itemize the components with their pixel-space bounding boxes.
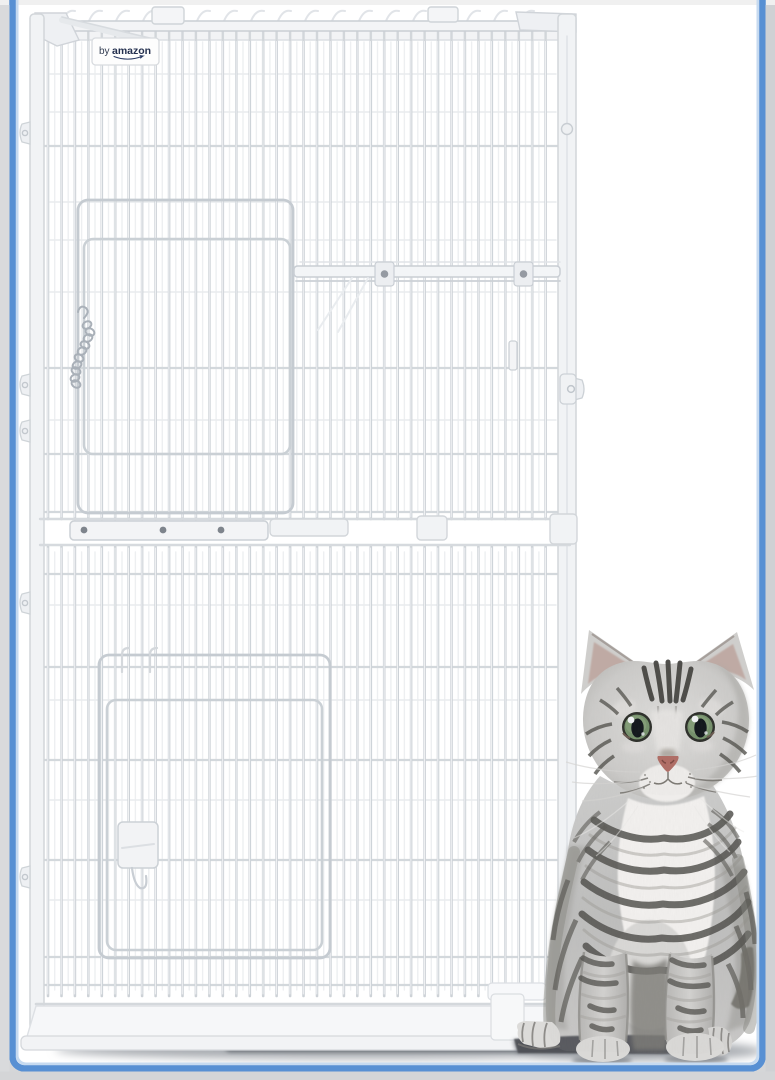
svg-text:by: by bbox=[99, 46, 110, 57]
svg-text:amazon: amazon bbox=[112, 45, 151, 57]
